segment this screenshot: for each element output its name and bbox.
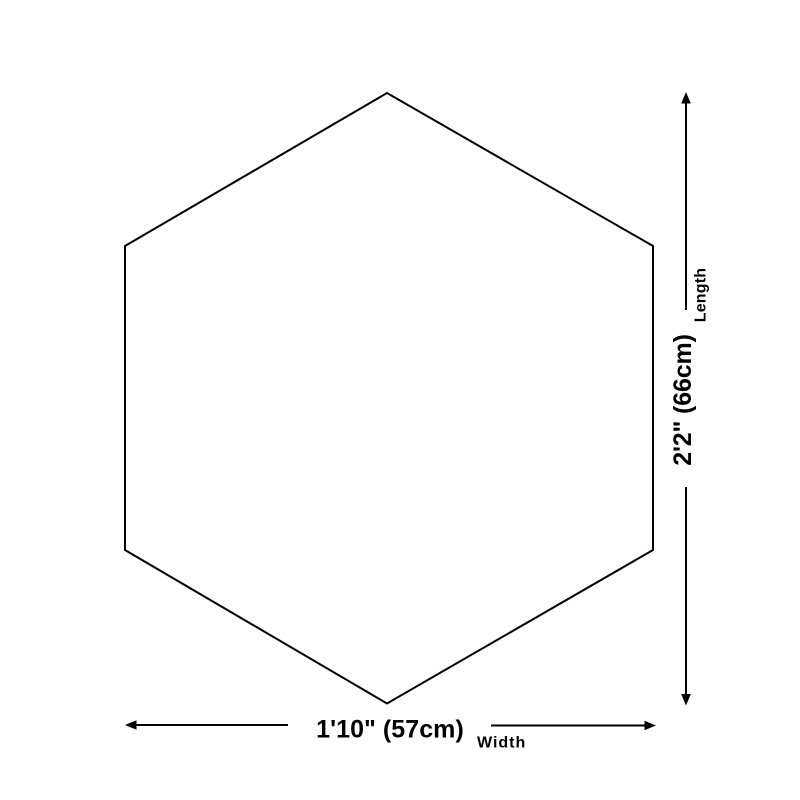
- svg-text:2'2" (66cm): 2'2" (66cm): [669, 334, 697, 466]
- svg-text:Length: Length: [693, 268, 710, 323]
- svg-text:1'10" (57cm): 1'10" (57cm): [316, 716, 464, 744]
- svg-text:Width: Width: [477, 735, 526, 752]
